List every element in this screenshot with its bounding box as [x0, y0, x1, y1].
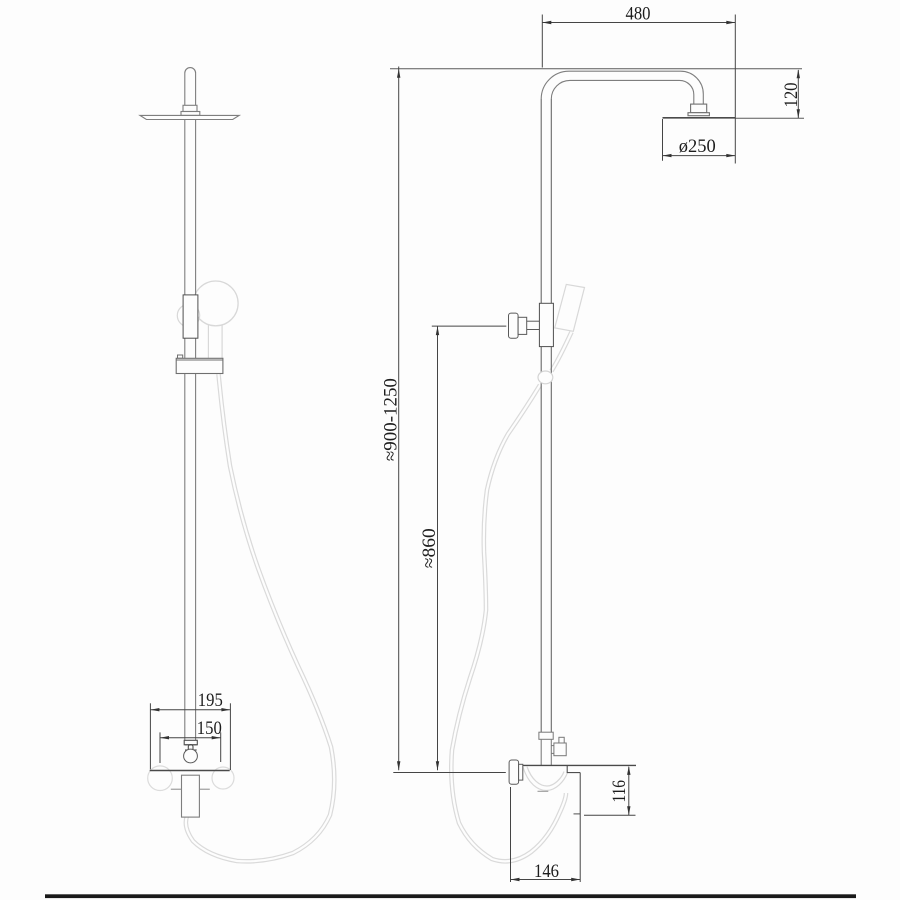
svg-text:≈860: ≈860 — [419, 528, 440, 568]
svg-text:146: 146 — [534, 861, 559, 882]
svg-text:≈900-1250: ≈900-1250 — [380, 378, 401, 461]
svg-text:ø250: ø250 — [679, 136, 716, 157]
svg-text:195: 195 — [198, 690, 223, 711]
svg-text:120: 120 — [781, 83, 802, 108]
svg-text:116: 116 — [609, 780, 630, 803]
svg-text:150: 150 — [197, 718, 222, 739]
svg-text:480: 480 — [626, 3, 651, 24]
